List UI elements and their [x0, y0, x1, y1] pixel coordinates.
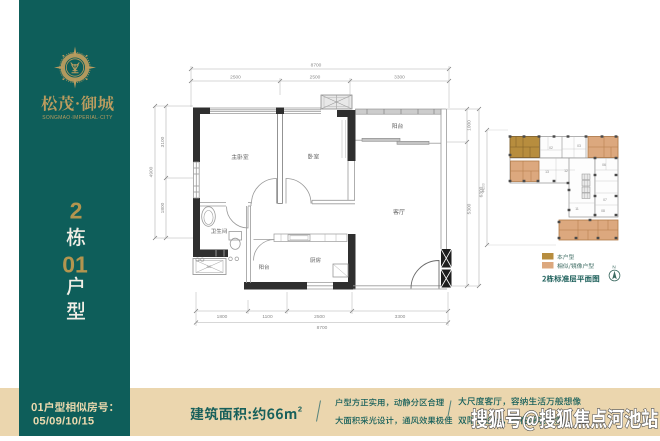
svg-text:SONGMAO·IMPERIAL·CITY: SONGMAO·IMPERIAL·CITY	[42, 115, 113, 121]
svg-text:02: 02	[549, 146, 553, 150]
svg-text:1800: 1800	[160, 202, 166, 213]
svg-text:11: 11	[575, 207, 579, 211]
svg-text:2: 2	[70, 198, 83, 224]
svg-text:N: N	[612, 265, 615, 270]
svg-text:08: 08	[601, 209, 605, 213]
svg-text:06: 06	[602, 163, 606, 167]
svg-text:8700: 8700	[311, 63, 322, 69]
svg-text:05/09/10/15: 05/09/10/15	[33, 416, 94, 428]
svg-text:3300: 3300	[395, 314, 406, 320]
svg-text:2500: 2500	[310, 75, 321, 81]
svg-text:07: 07	[603, 198, 607, 202]
svg-text:5300: 5300	[466, 203, 472, 214]
svg-text:1000: 1000	[466, 120, 472, 131]
svg-text:1800: 1800	[217, 314, 228, 320]
svg-text:2500: 2500	[314, 314, 325, 320]
svg-text:13: 13	[545, 170, 549, 174]
svg-text:AC: AC	[207, 265, 212, 269]
svg-text:3300: 3300	[394, 75, 405, 81]
svg-text:03: 03	[577, 144, 581, 148]
svg-text:2: 2	[298, 405, 302, 414]
svg-text:8700: 8700	[317, 325, 328, 331]
svg-text:01: 01	[62, 252, 88, 278]
svg-text:44200: 44200	[482, 183, 486, 193]
svg-text:1100: 1100	[262, 314, 273, 320]
svg-text:4900: 4900	[149, 166, 155, 177]
svg-text:3100: 3100	[160, 136, 166, 147]
svg-text:2500: 2500	[230, 75, 241, 81]
svg-text:12: 12	[564, 169, 568, 173]
